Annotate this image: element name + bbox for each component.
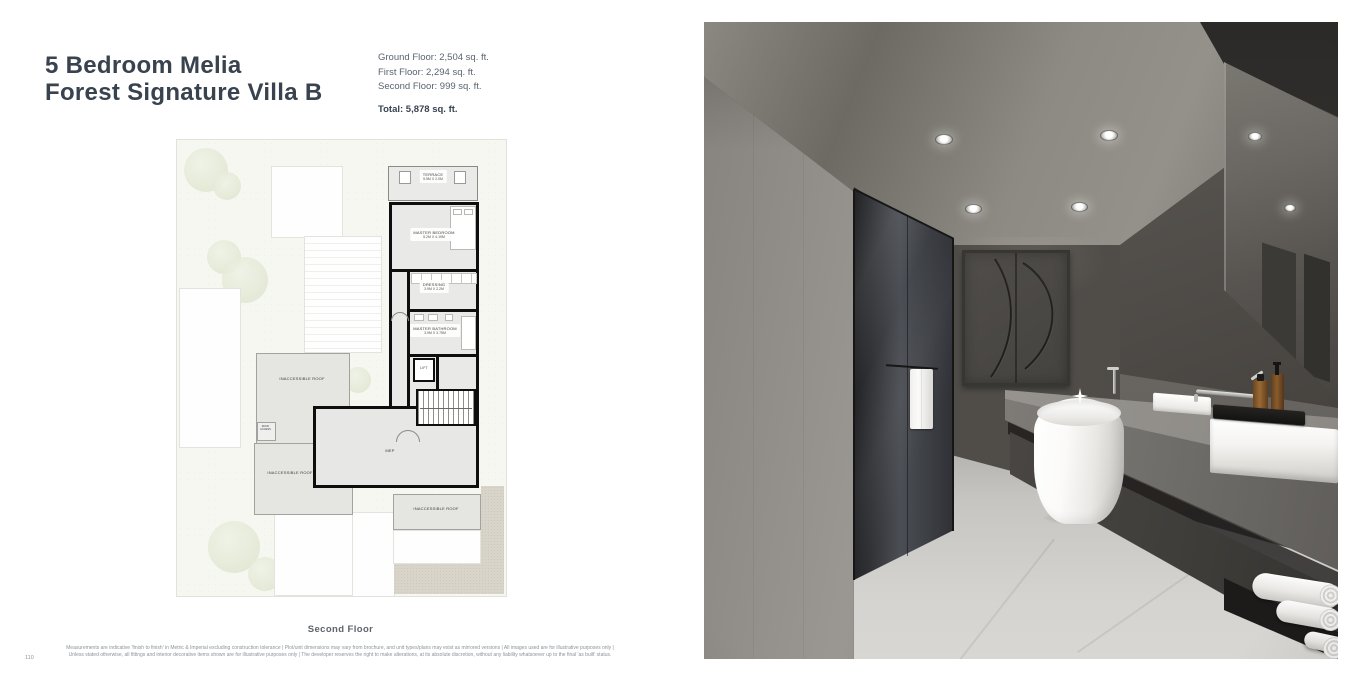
soap-bottle [1271,374,1284,412]
shower-glass-frame [907,215,908,556]
wall-segment [409,354,479,357]
room-label-master-bathroom: MASTER BATHROOM 3.9M X 3.75M [410,324,460,337]
wall-segment [409,309,479,312]
plan-caption: Second Floor [176,624,505,635]
mirror-reflected-light [1248,132,1262,141]
soap-pump-head [1273,362,1281,365]
sink-symbol [428,314,438,321]
area-first-floor: First Floor: 2,294 sq. ft. [378,66,489,81]
bathtub-symbol [461,316,476,350]
brochure-page: 5 Bedroom Melia Forest Signature Villa B… [0,0,1361,678]
skylight-symbol [399,171,411,184]
lift-room [413,358,435,382]
title-line1: 5 Bedroom Melia [45,53,323,80]
wall-faucet-tip [1194,394,1198,402]
room-label-dressing: DRESSING 3.9M X 2.2M [420,280,449,293]
soap-bottle-cap [1257,374,1264,381]
wall-art-curves [965,253,1067,383]
mirror-reflected-light [1284,204,1296,212]
mirror-edge-highlight [1224,62,1226,292]
floor-plan: TERRACE 5.5M X 2.0M MASTER BEDROOM 5.2M … [176,139,507,597]
stairs-symbol [416,389,476,426]
ground-floor-outline [179,288,241,448]
roof-area-bottom-right [393,494,481,530]
ceiling-spotlight [1071,202,1088,212]
hand-towel [910,369,933,429]
title-line2: Forest Signature Villa B [45,80,323,107]
area-total: Total: 5,878 sq. ft. [378,103,489,118]
disclaimer-line2: Unless stated otherwise, all fittings an… [40,652,640,659]
bathtub [1034,398,1124,524]
room-label-mep: MEP [385,448,394,453]
page-number: 110 [25,655,34,661]
area-ground-floor: Ground Floor: 2,504 sq. ft. [378,51,489,66]
room-label-inaccessible-roof-1: INACCESSIBLE ROOF [279,376,324,381]
skylight-symbol [454,171,466,184]
room-label-terrace: TERRACE 5.5M X 2.0M [420,170,447,183]
ground-floor-outline [274,514,353,596]
wall-segment [436,356,439,389]
ground-floor-outline [271,166,343,238]
ceiling-spotlight [935,134,953,145]
sink-symbol [414,314,424,321]
wall-art-panel [962,250,1070,386]
disclaimer-line1: Measurements are indicative 'finish to f… [40,645,640,652]
pillow-symbol [464,209,473,215]
ground-floor-outline [393,530,481,564]
pillow-symbol [453,209,462,215]
counter-faucet [1113,368,1116,394]
page-title: 5 Bedroom Melia Forest Signature Villa B [45,53,323,106]
sparkle-highlight [1072,388,1088,404]
wall-segment [389,269,479,272]
room-label-inaccessible-roof-2: INACCESSIBLE ROOF [267,470,312,475]
wc-symbol [445,314,453,321]
shower-glass-frame [853,190,855,580]
counter-faucet-spout [1107,367,1119,370]
mirror-reflection-panel [1304,254,1330,382]
soap-pump [1275,364,1279,375]
room-label-master-bedroom: MASTER BEDROOM 5.2M X 4.19M [410,228,457,241]
wall-segment [407,271,410,406]
bathroom-photo [704,22,1338,659]
ceiling-spotlight [965,204,982,214]
ground-floor-outline [304,236,382,353]
area-second-floor: Second Floor: 999 sq. ft. [378,80,489,95]
room-label-lift: LIFT [420,366,428,370]
room-label-inaccessible-roof-3: INACCESSIBLE ROOF [413,506,458,511]
ground-floor-outline [351,512,395,597]
basin-near [1210,419,1338,484]
floor-areas: Ground Floor: 2,504 sq. ft. First Floor:… [378,51,489,117]
disclaimer: Measurements are indicative 'finish to f… [40,645,640,658]
room-label-roof-access: ROOF ACCESS [258,425,273,431]
ceiling-spotlight [1100,130,1118,141]
tree-symbol [213,172,241,200]
sand-texture [481,486,504,594]
